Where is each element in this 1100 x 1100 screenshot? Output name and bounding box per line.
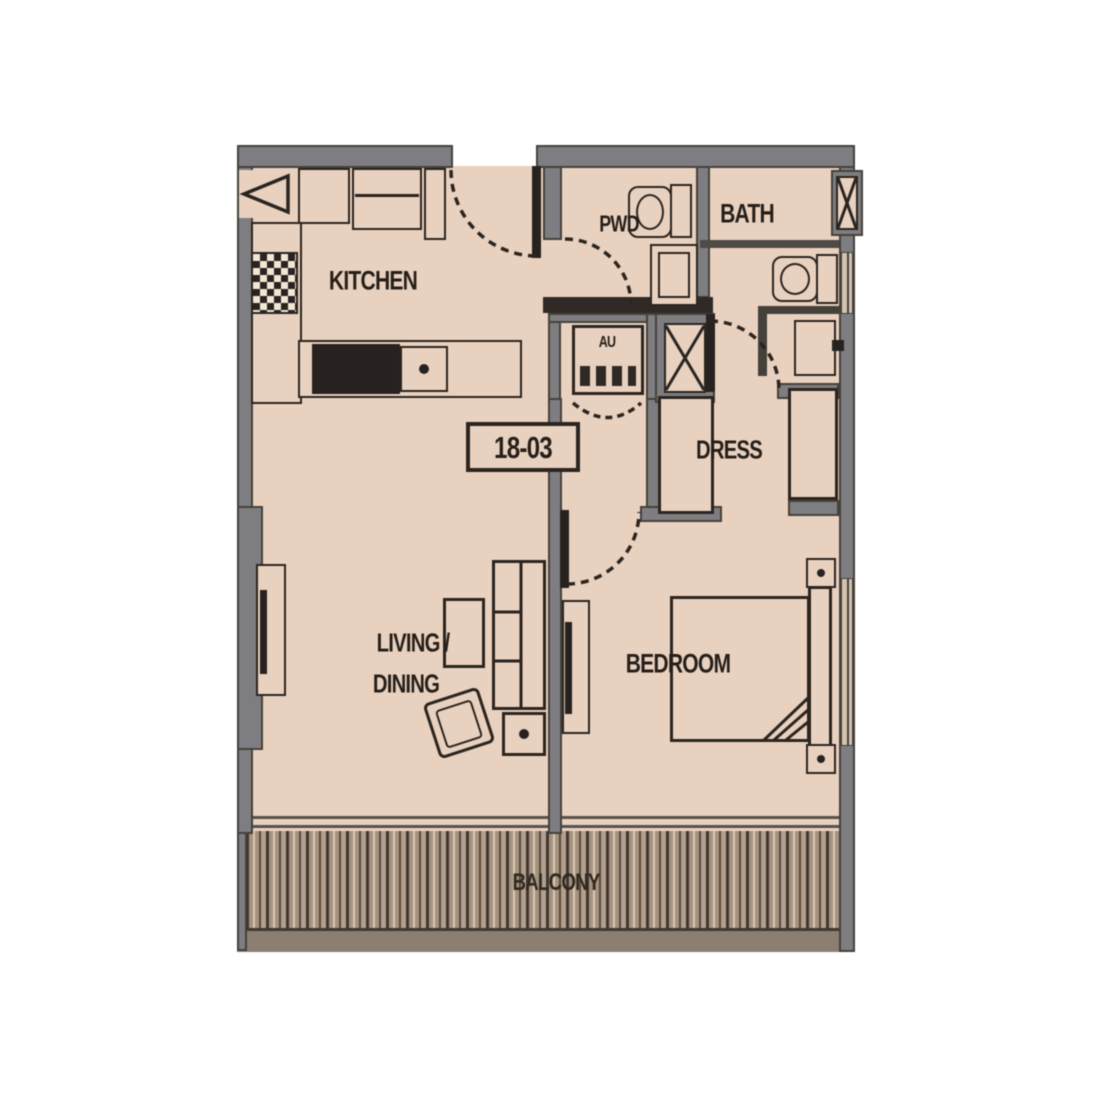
bedroom-window	[841, 578, 853, 746]
balcony-label: BALCONY	[512, 869, 599, 897]
bath-label: BATH	[720, 199, 774, 230]
kitchen-fridge	[352, 168, 422, 230]
dress-bottom-right-wall	[788, 500, 839, 516]
unit-number-label: 18-03	[494, 430, 552, 466]
kitchen-top-cabinet	[298, 168, 350, 224]
bath-toilet-tank	[816, 254, 838, 304]
top-wall-left-segment	[237, 145, 453, 168]
bath-sink	[794, 320, 836, 376]
bath-window	[841, 252, 853, 314]
pwd-toilet-tank	[670, 184, 692, 238]
living-label-line1: LIVING /	[377, 628, 450, 659]
balcony-bottom-band	[237, 928, 855, 952]
kitchen-fridge-divider-line	[355, 194, 419, 197]
pwd-sink-basin	[658, 252, 690, 298]
bedroom-door-leaf	[560, 510, 569, 588]
pwd-bath-divider-wall	[696, 166, 710, 298]
ac-closet-top-wall	[548, 313, 658, 323]
living-tv	[260, 590, 267, 674]
balcony-door-track-line	[249, 816, 839, 819]
entry-jamb-wall	[543, 166, 562, 240]
cooktop-control-knob	[419, 364, 429, 374]
bed-headboard	[808, 586, 832, 752]
kitchen-cooktop	[312, 344, 400, 394]
bath-sink-nook-wall-v	[758, 312, 767, 376]
pwd-label: PWD	[599, 211, 639, 238]
bedroom-tv	[565, 622, 572, 714]
kitchen-label: KITCHEN	[329, 266, 417, 297]
nightstand-bottom-lamp	[817, 755, 825, 763]
bath-sink-nook-wall-h	[758, 306, 839, 314]
corridor-door-box	[239, 170, 293, 218]
floor-plan: KITCHEN PWD BATH AU 18-03 DRESS LIVING /…	[0, 0, 1100, 1100]
kitchen-sink	[251, 252, 298, 314]
pwd-toilet-seat	[636, 194, 664, 230]
bath-door-leaf	[706, 314, 715, 392]
bathtub-edge-line	[700, 240, 839, 248]
ac-unit-label: AU	[599, 334, 615, 352]
top-wall-right-segment	[536, 145, 855, 168]
ac-unit-grille	[580, 366, 636, 386]
sofa	[492, 560, 546, 710]
nightstand-top-lamp	[817, 569, 825, 577]
page: { "unit": { "number": "18-03" }, "labels…	[0, 0, 1100, 1100]
dress-label: DRESS	[696, 435, 762, 466]
bedroom-label: BEDROOM	[626, 649, 731, 680]
balcony-door-track-line	[249, 825, 839, 828]
bath-sink-tap	[832, 340, 844, 351]
living-label-line2: DINING	[373, 669, 439, 700]
bath-toilet-seat	[780, 263, 810, 295]
dress-wardrobe-right	[788, 388, 838, 500]
left-wall-lower	[237, 748, 253, 834]
shaft-box-topright-inner	[836, 176, 858, 230]
kitchen-tall-unit	[424, 168, 446, 240]
ac-closet-left-wall	[548, 313, 561, 405]
side-table-decor	[519, 729, 529, 739]
balcony-left-edge-wall	[237, 831, 247, 951]
entrance-door-leaf	[532, 166, 541, 258]
shaft-box-mid-inner	[664, 323, 706, 393]
